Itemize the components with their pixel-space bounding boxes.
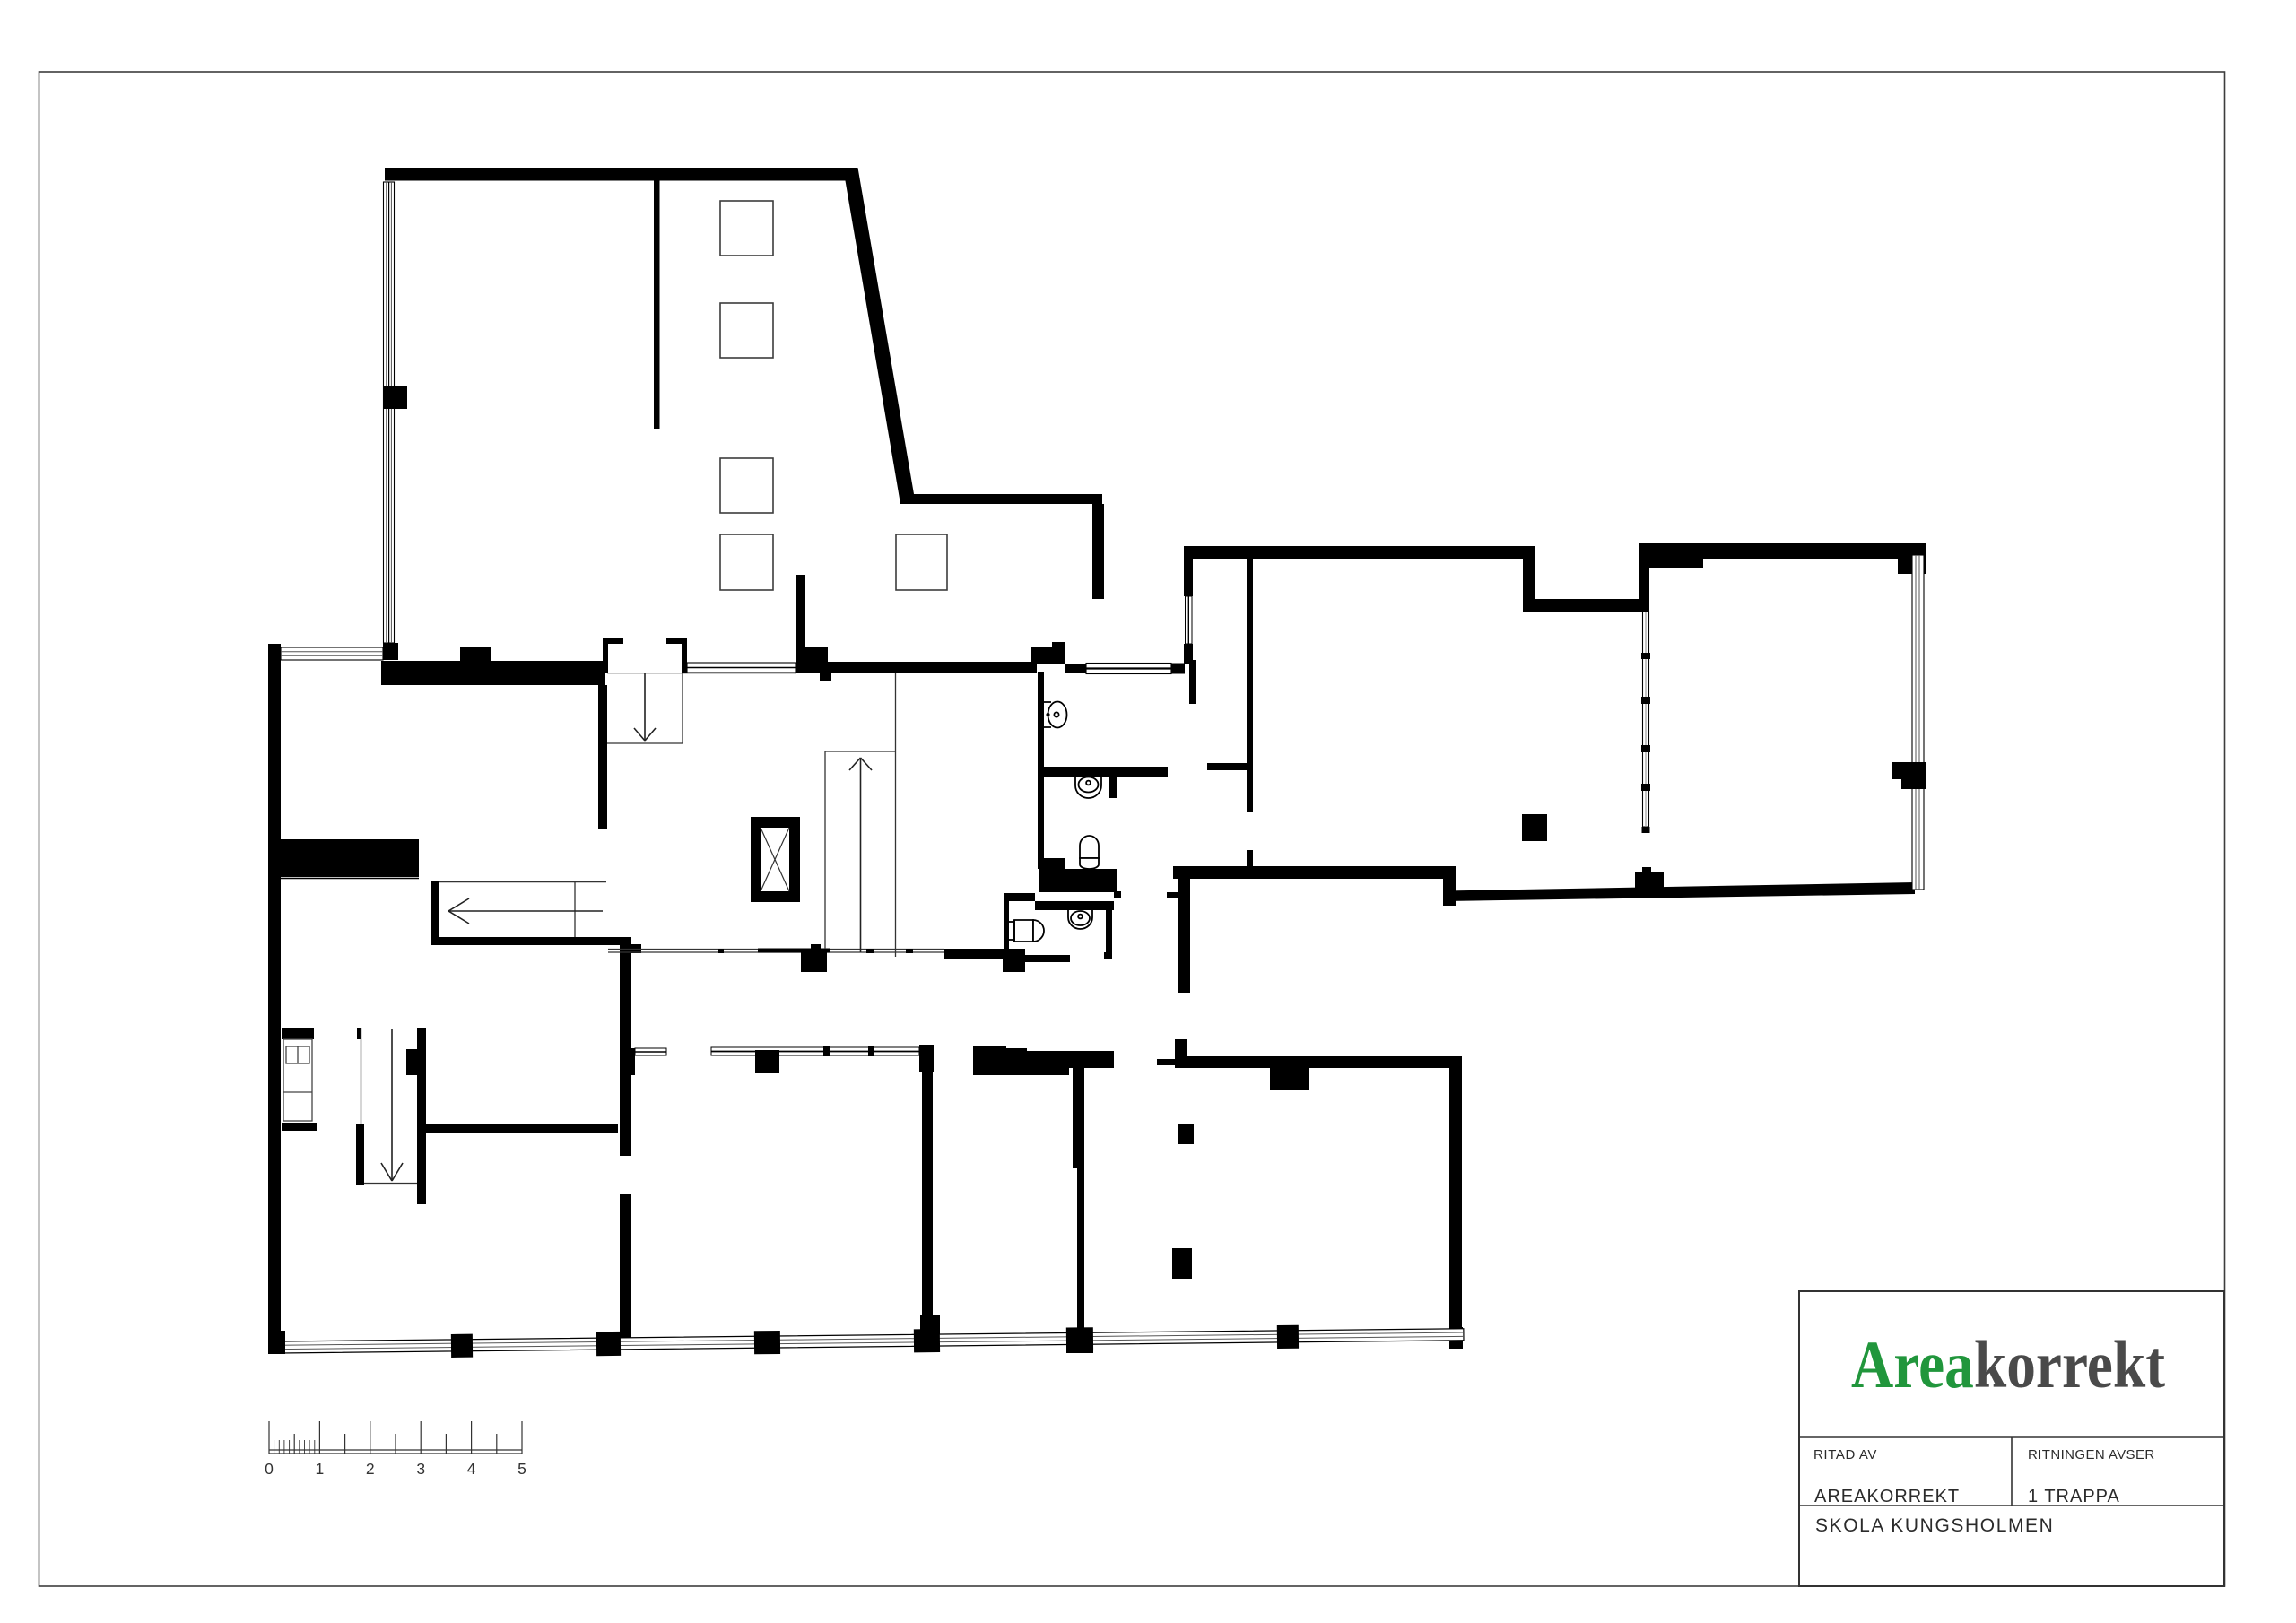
svg-text:3: 3	[416, 1460, 425, 1478]
svg-text:1: 1	[316, 1460, 325, 1478]
svg-text:SKOLA KUNGSHOLMEN: SKOLA KUNGSHOLMEN	[1815, 1515, 2054, 1536]
svg-text:2: 2	[366, 1460, 375, 1478]
svg-text:RITAD AV: RITAD AV	[1813, 1447, 1877, 1462]
svg-text:5: 5	[517, 1460, 526, 1478]
svg-text:AREAKORREKT: AREAKORREKT	[1814, 1487, 1960, 1506]
svg-text:RITNINGEN AVSER: RITNINGEN AVSER	[2028, 1447, 2155, 1462]
svg-text:1 TRAPPA: 1 TRAPPA	[2028, 1487, 2120, 1506]
svg-text:0: 0	[265, 1460, 274, 1478]
svg-text:4: 4	[467, 1460, 476, 1478]
svg-text:Areakorrekt: Areakorrekt	[1851, 1328, 2165, 1402]
